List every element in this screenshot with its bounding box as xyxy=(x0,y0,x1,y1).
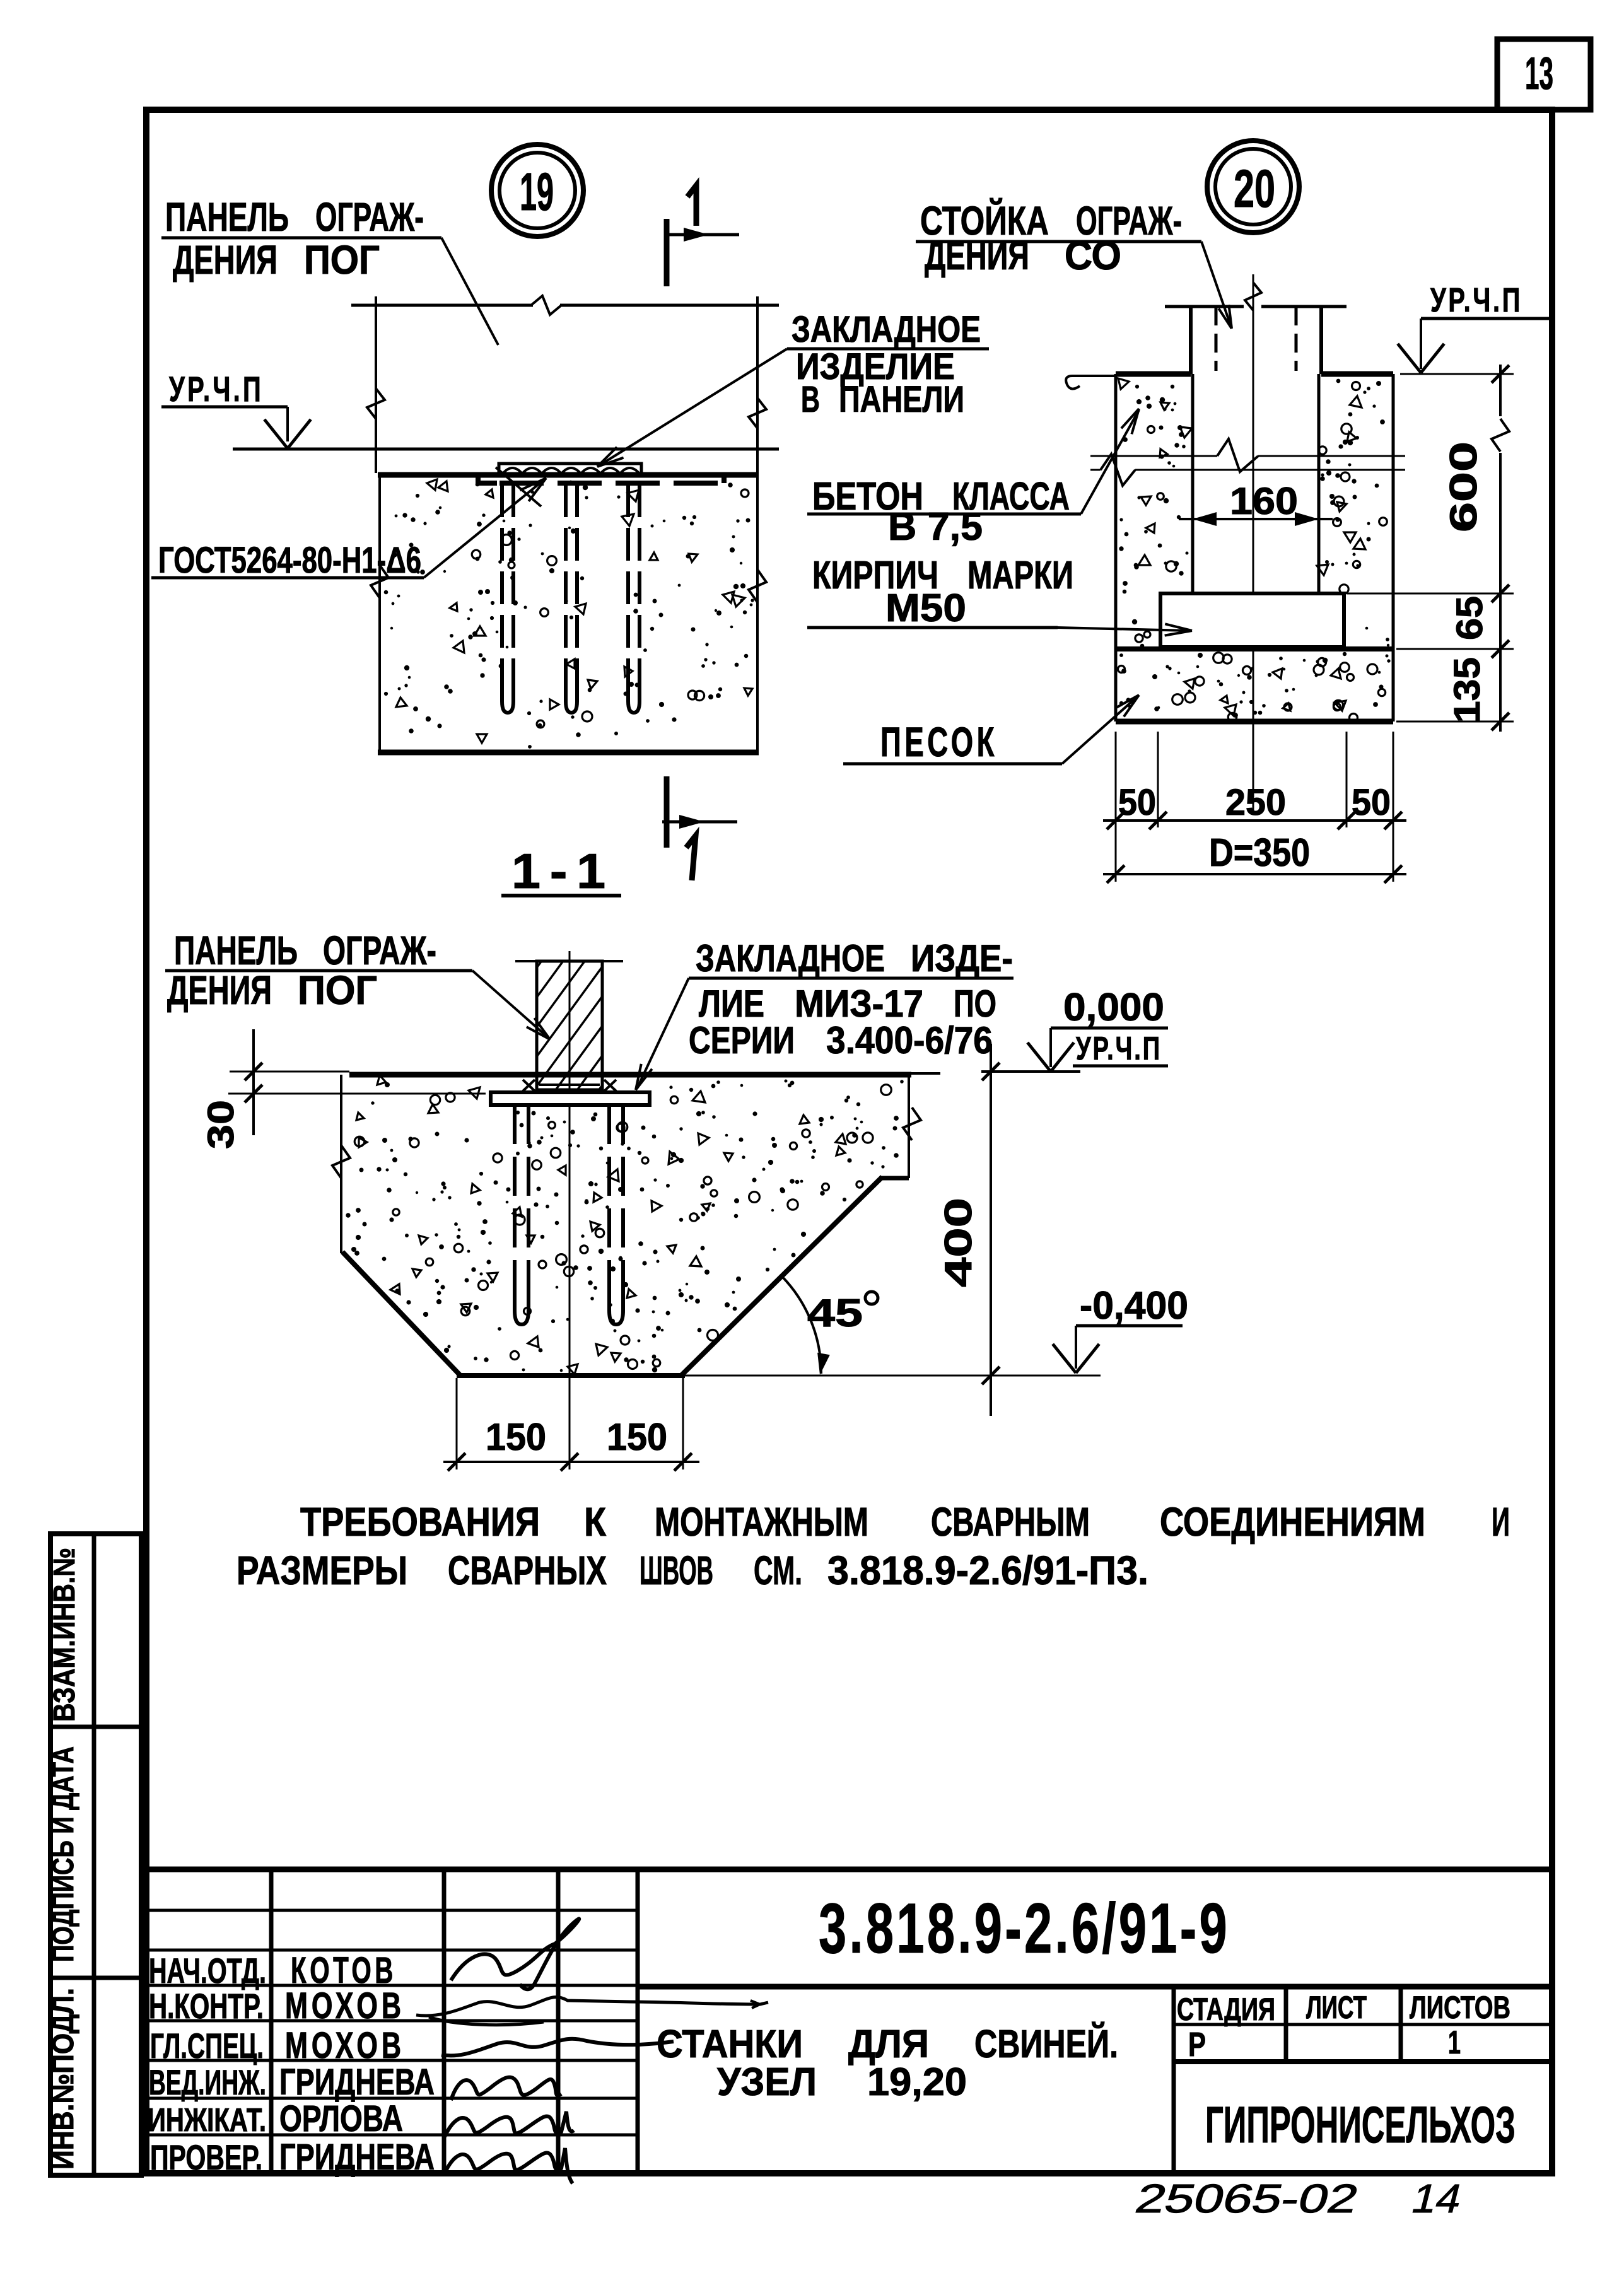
svg-text:400: 400 xyxy=(937,1198,979,1287)
svg-text:НАЧ.ОТД.: НАЧ.ОТД. xyxy=(149,1951,266,1990)
svg-text:М50: М50 xyxy=(885,587,966,630)
svg-text:-0,400: -0,400 xyxy=(1080,1284,1188,1328)
svg-text:600: 600 xyxy=(1442,441,1485,532)
svg-text:ПОГ: ПОГ xyxy=(304,237,380,283)
svg-text:50: 50 xyxy=(1352,782,1391,823)
svg-text:3.818.9-2.6/91-П3.: 3.818.9-2.6/91-П3. xyxy=(827,1548,1148,1593)
svg-text:УР.Ч.П: УР.Ч.П xyxy=(169,369,264,409)
svg-text:3.818.9-2.6/91-9: 3.818.9-2.6/91-9 xyxy=(819,1889,1230,1968)
svg-text:45: 45 xyxy=(807,1292,863,1335)
svg-text:СВАРНЫХ: СВАРНЫХ xyxy=(448,1548,607,1593)
svg-text:И: И xyxy=(1492,1499,1510,1545)
svg-text:МОХОВ: МОХОВ xyxy=(285,2025,405,2066)
svg-text:СВАРНЫМ: СВАРНЫМ xyxy=(931,1499,1090,1545)
svg-text:МОНТАЖНЫМ: МОНТАЖНЫМ xyxy=(655,1499,868,1545)
svg-text:ГЛ.СПЕЦ.: ГЛ.СПЕЦ. xyxy=(150,2026,264,2065)
svg-text:D=350: D=350 xyxy=(1209,831,1310,875)
svg-text:20: 20 xyxy=(1234,159,1275,218)
svg-text:3.400-6/76: 3.400-6/76 xyxy=(826,1019,993,1061)
svg-text:СВИНЕЙ.: СВИНЕЙ. xyxy=(974,2022,1118,2066)
svg-text:1: 1 xyxy=(1448,2024,1461,2061)
svg-text:ДЕНИЯ: ДЕНИЯ xyxy=(167,967,272,1013)
svg-text:ГИПРОНИСЕЛЬХОЗ: ГИПРОНИСЕЛЬХОЗ xyxy=(1205,2096,1516,2154)
svg-text:ГОСТ5264-80-Н1-Δ6: ГОСТ5264-80-Н1-Δ6 xyxy=(158,540,421,581)
svg-text:ТРЕБОВАНИЯ: ТРЕБОВАНИЯ xyxy=(300,1499,540,1545)
svg-text:ПАНЕЛИ: ПАНЕЛИ xyxy=(839,379,964,420)
svg-text:ПО: ПО xyxy=(954,983,996,1025)
svg-text:ИНЖIКАТ.: ИНЖIКАТ. xyxy=(148,2102,266,2139)
svg-text:ВЗАМ.ИНВ.№: ВЗАМ.ИНВ.№ xyxy=(48,1548,81,1722)
svg-text:ВЕД.ИНЖ.: ВЕД.ИНЖ. xyxy=(149,2062,266,2102)
svg-text:ДЛЯ: ДЛЯ xyxy=(848,2023,929,2066)
svg-text:ГРИДНЕВА: ГРИДНЕВА xyxy=(279,2062,435,2103)
svg-text:УР.Ч.П: УР.Ч.П xyxy=(1430,281,1522,319)
svg-text:ЗАКЛАДНОЕ: ЗАКЛАДНОЕ xyxy=(792,309,981,350)
svg-text:ПАНЕЛЬ: ПАНЕЛЬ xyxy=(165,194,289,240)
svg-text:13: 13 xyxy=(1525,49,1553,99)
svg-text:МОХОВ: МОХОВ xyxy=(285,1985,405,2026)
svg-text:ОГРАЖ-: ОГРАЖ- xyxy=(323,928,436,973)
svg-text:СОЕДИНЕНИЯМ: СОЕДИНЕНИЯМ xyxy=(1160,1499,1425,1545)
svg-text:30: 30 xyxy=(201,1100,242,1149)
svg-text:Р: Р xyxy=(1188,2026,1206,2064)
svg-text:1-1: 1-1 xyxy=(511,843,615,899)
svg-text:СТАДИЯ: СТАДИЯ xyxy=(1177,1992,1275,2027)
svg-text:Н.КОНТР.: Н.КОНТР. xyxy=(149,1986,264,2026)
svg-text:ИНВ.№ПОДЛ.: ИНВ.№ПОДЛ. xyxy=(47,1988,80,2170)
svg-text:ОГРАЖ-: ОГРАЖ- xyxy=(315,194,424,240)
svg-text:ПЕСОК: ПЕСОК xyxy=(880,718,998,765)
svg-text:ЛИЕ: ЛИЕ xyxy=(699,983,764,1025)
svg-text:150: 150 xyxy=(486,1416,546,1458)
svg-text:ШВОВ: ШВОВ xyxy=(640,1548,713,1593)
svg-text:19: 19 xyxy=(520,162,554,221)
svg-text:УР.Ч.П: УР.Ч.П xyxy=(1076,1031,1162,1067)
svg-text:ПРОВЕР.: ПРОВЕР. xyxy=(150,2137,262,2177)
svg-text:МАРКИ: МАРКИ xyxy=(967,554,1073,597)
svg-text:ГРИДНЕВА: ГРИДНЕВА xyxy=(279,2137,435,2178)
svg-text:135: 135 xyxy=(1447,657,1488,723)
svg-text:ЛИСТ: ЛИСТ xyxy=(1306,1990,1367,2025)
svg-text:25065-02: 25065-02 xyxy=(1131,2176,1364,2221)
svg-text:ЗАКЛАДНОЕ: ЗАКЛАДНОЕ xyxy=(696,937,885,979)
svg-text:65: 65 xyxy=(1449,596,1490,640)
svg-text:СЕРИИ: СЕРИИ xyxy=(689,1019,795,1061)
svg-text:В: В xyxy=(801,379,820,420)
svg-text:ПОДПИСЬ И ДАТА: ПОДПИСЬ И ДАТА xyxy=(47,1746,80,1962)
svg-text:50: 50 xyxy=(1118,782,1156,823)
svg-text:МИЗ-17: МИЗ-17 xyxy=(795,983,923,1025)
svg-text:ПОГ: ПОГ xyxy=(298,967,377,1013)
svg-text:ПАНЕЛЬ: ПАНЕЛЬ xyxy=(174,928,298,973)
svg-text:ДЕНИЯ: ДЕНИЯ xyxy=(173,237,277,283)
svg-text:150: 150 xyxy=(607,1416,667,1458)
svg-text:УЗЕЛ: УЗЕЛ xyxy=(717,2060,817,2104)
svg-text:160: 160 xyxy=(1230,480,1298,522)
svg-text:250: 250 xyxy=(1225,782,1286,823)
svg-text:0,000: 0,000 xyxy=(1063,986,1164,1029)
svg-text:ИЗДЕ-: ИЗДЕ- xyxy=(911,937,1013,979)
svg-text:В 7,5: В 7,5 xyxy=(888,505,983,549)
svg-text:ДЕНИЯ: ДЕНИЯ xyxy=(925,233,1029,278)
svg-text:СМ.: СМ. xyxy=(754,1548,802,1593)
svg-text:РАЗМЕРЫ: РАЗМЕРЫ xyxy=(237,1548,407,1593)
svg-text:К: К xyxy=(584,1499,607,1545)
svg-text:СТАНКИ: СТАНКИ xyxy=(657,2023,803,2066)
svg-text:ОРЛОВА: ОРЛОВА xyxy=(279,2098,403,2139)
svg-text:СО: СО xyxy=(1065,233,1121,278)
svg-text:19,20: 19,20 xyxy=(867,2060,967,2104)
svg-text:ЛИСТОВ: ЛИСТОВ xyxy=(1410,1990,1510,2025)
